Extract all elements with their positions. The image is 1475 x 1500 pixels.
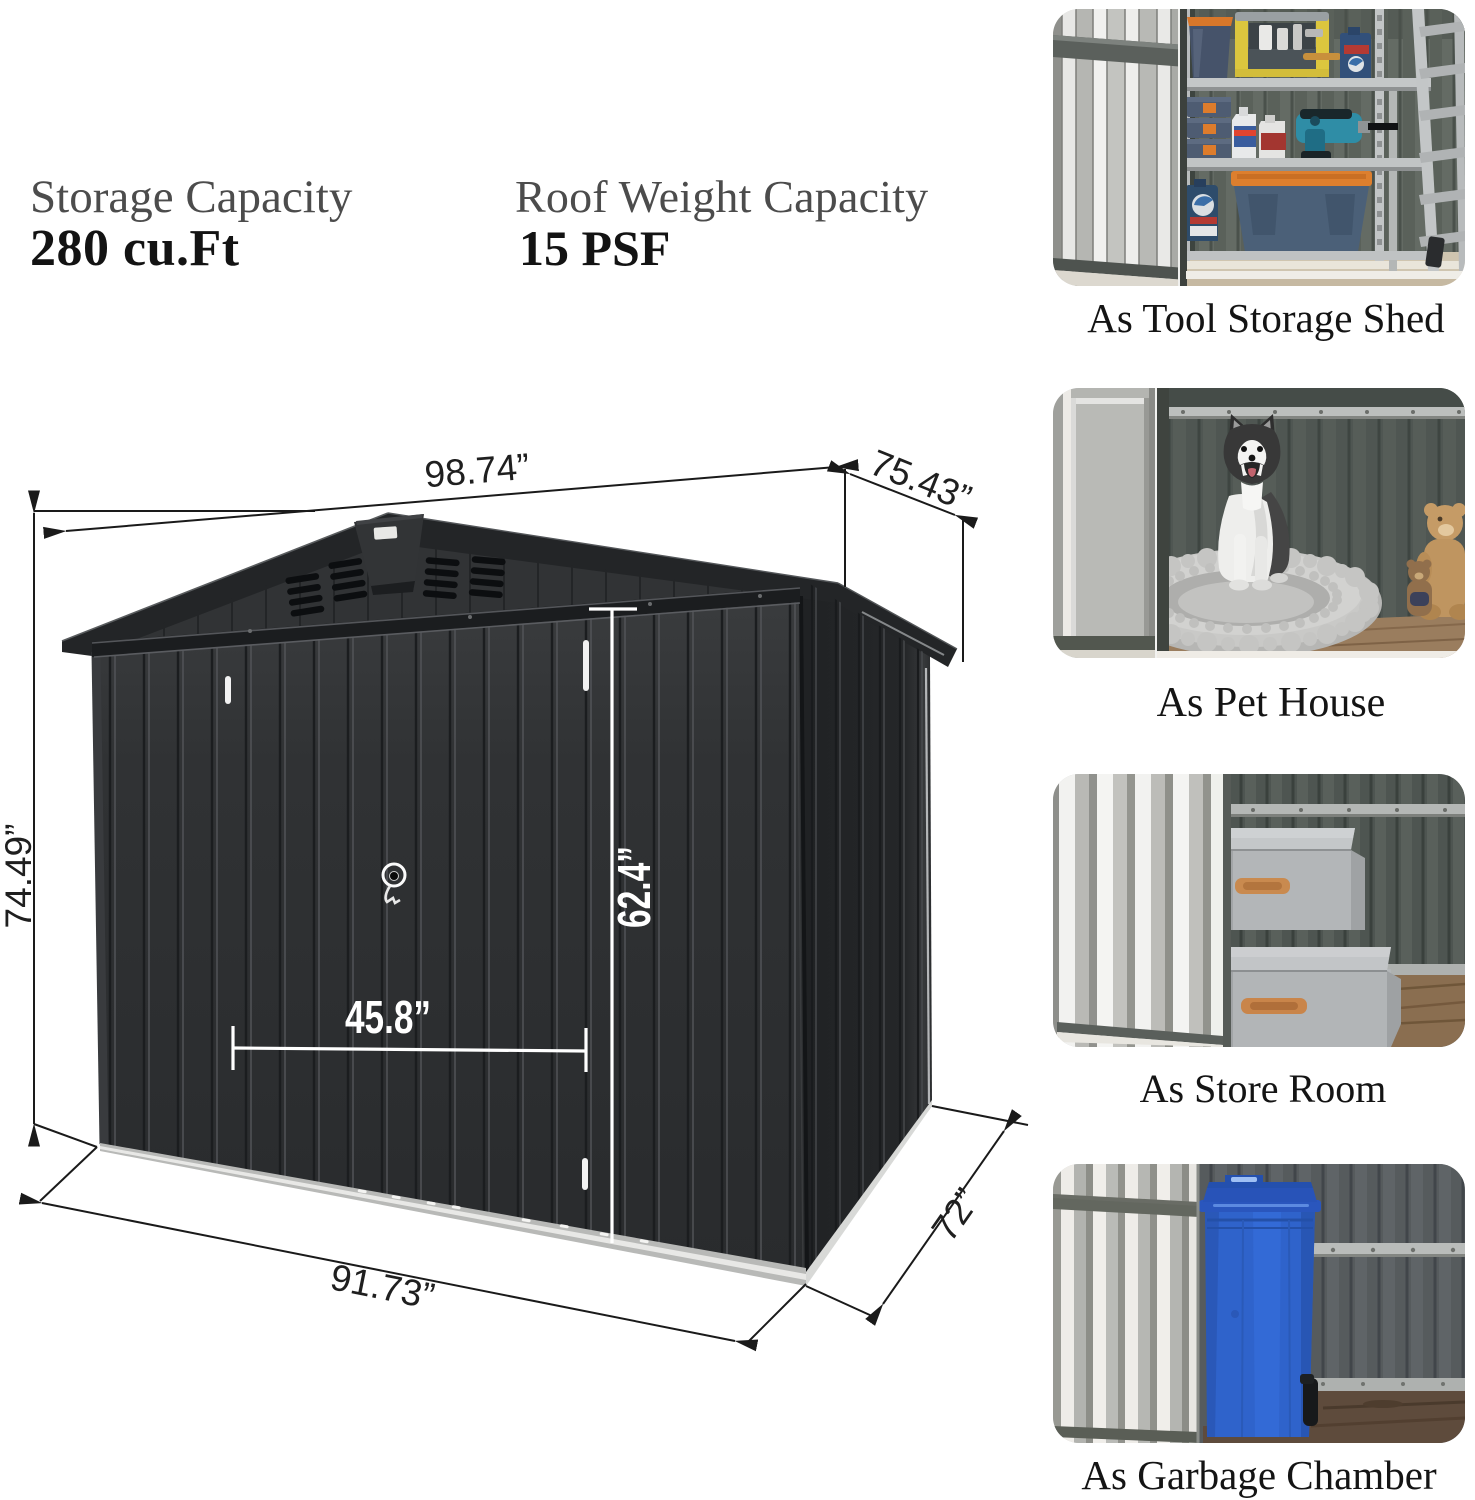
svg-text:72”: 72” — [924, 1181, 988, 1248]
svg-text:45.8”: 45.8” — [345, 991, 431, 1043]
svg-text:75.43”: 75.43” — [864, 442, 977, 519]
svg-text:98.74”: 98.74” — [423, 446, 531, 496]
svg-text:74.49”: 74.49” — [0, 824, 39, 929]
svg-text:62.4”: 62.4” — [608, 846, 660, 928]
svg-text:91.73”: 91.73” — [327, 1256, 438, 1317]
